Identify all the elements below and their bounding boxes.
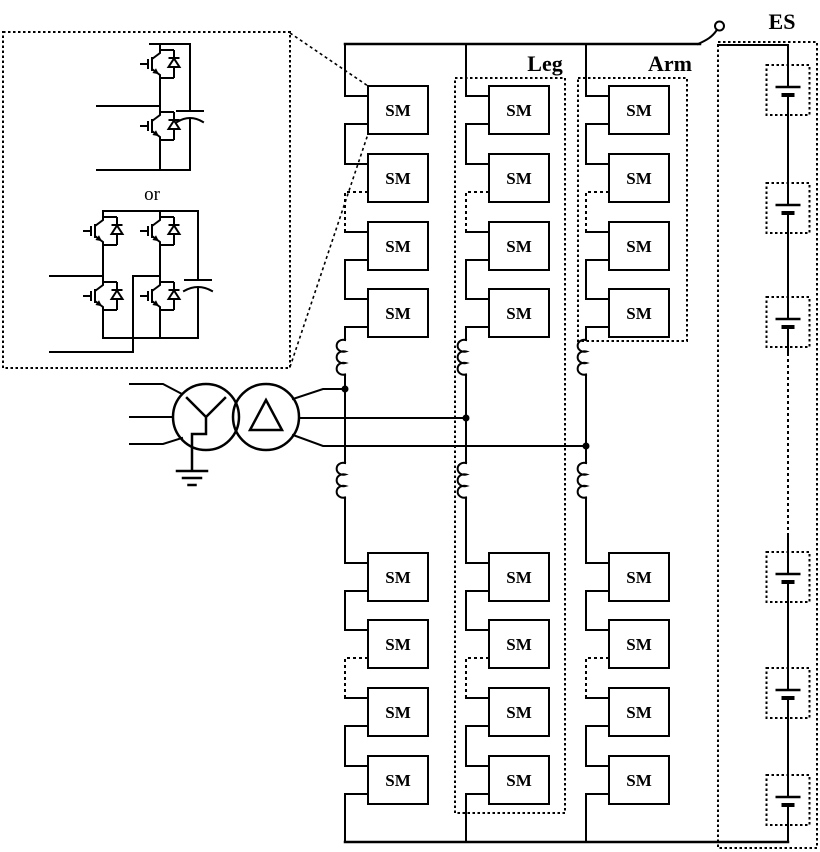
igbt-icon bbox=[83, 276, 123, 316]
sm-label: SM bbox=[626, 237, 652, 256]
sm-label: SM bbox=[385, 101, 411, 120]
wye-delta-transformer-icon bbox=[130, 384, 299, 485]
sm-block: SM bbox=[609, 756, 669, 804]
secondary-winding-circle bbox=[233, 384, 299, 450]
half-bridge-submodule-icon bbox=[97, 44, 203, 170]
sm-label: SM bbox=[626, 101, 652, 120]
sm-label: SM bbox=[506, 237, 532, 256]
battery-cell-icon bbox=[767, 65, 810, 115]
sm-block: SM bbox=[368, 553, 428, 601]
sm-block: SM bbox=[609, 688, 669, 736]
sm-block: SM bbox=[368, 756, 428, 804]
sm-block: SM bbox=[609, 620, 669, 668]
sm-label: SM bbox=[506, 101, 532, 120]
igbt-icon bbox=[140, 106, 180, 146]
capacitor-icon bbox=[184, 211, 212, 338]
sm-label: SM bbox=[626, 169, 652, 188]
sm-block: SM bbox=[489, 154, 549, 202]
sm-block: SM bbox=[609, 289, 669, 337]
sm-block: SM bbox=[368, 688, 428, 736]
igbt-icon bbox=[140, 276, 180, 316]
or-label: or bbox=[144, 184, 161, 205]
es-dotted-box bbox=[718, 42, 817, 848]
sm-label: SM bbox=[385, 237, 411, 256]
battery-cell-icon bbox=[767, 552, 810, 602]
sm-label: SM bbox=[385, 635, 411, 654]
full-bridge-submodule-icon bbox=[50, 211, 212, 352]
es-label: ES bbox=[769, 9, 796, 34]
sm-label: SM bbox=[385, 568, 411, 587]
sm-block: SM bbox=[489, 756, 549, 804]
sm-label: SM bbox=[626, 304, 652, 323]
sm-block: SM bbox=[368, 289, 428, 337]
phase-a-leg-wiring bbox=[337, 44, 368, 842]
sm-block: SM bbox=[489, 688, 549, 736]
sm-block: SM bbox=[609, 222, 669, 270]
battery-string-wire bbox=[718, 45, 788, 842]
sm-label: SM bbox=[506, 169, 532, 188]
sm-block: SM bbox=[609, 154, 669, 202]
dc-bus-tap-hook-icon bbox=[698, 22, 724, 45]
sm-label: SM bbox=[385, 703, 411, 722]
sm-label: SM bbox=[385, 771, 411, 790]
sm-label: SM bbox=[626, 635, 652, 654]
sm-label: SM bbox=[626, 568, 652, 587]
battery-cell-icon bbox=[767, 183, 810, 233]
sm-block: SM bbox=[368, 222, 428, 270]
sm-label: SM bbox=[626, 703, 652, 722]
sm-block: SM bbox=[368, 86, 428, 134]
delta-symbol bbox=[250, 400, 282, 430]
energy-storage-section bbox=[718, 42, 817, 848]
sm-label: SM bbox=[385, 169, 411, 188]
sm-block: SM bbox=[609, 553, 669, 601]
detail-pointer-lines bbox=[290, 33, 368, 367]
phase-c-leg-wiring bbox=[578, 44, 609, 842]
sm-label: SM bbox=[626, 771, 652, 790]
sm-label: SM bbox=[506, 568, 532, 587]
sm-label: SM bbox=[506, 635, 532, 654]
phase-connection-lines bbox=[293, 386, 590, 450]
arm-label: Arm bbox=[648, 51, 692, 76]
earth-ground-icon bbox=[177, 471, 207, 485]
igbt-icon bbox=[140, 211, 180, 251]
sm-block: SM bbox=[368, 620, 428, 668]
leg-label: Leg bbox=[527, 51, 562, 76]
sm-label: SM bbox=[506, 304, 532, 323]
wye-symbol bbox=[187, 398, 225, 470]
phase-b-leg-wiring bbox=[458, 44, 489, 842]
sm-block: SM bbox=[489, 553, 549, 601]
capacitor-icon bbox=[177, 44, 203, 170]
sm-label: SM bbox=[506, 771, 532, 790]
battery-cell-icon bbox=[767, 668, 810, 718]
battery-cell-icon bbox=[767, 775, 810, 825]
sm-label: SM bbox=[385, 304, 411, 323]
sm-label: SM bbox=[506, 703, 532, 722]
sm-block: SM bbox=[489, 222, 549, 270]
sm-block: SM bbox=[609, 86, 669, 134]
battery-cell-icon bbox=[767, 297, 810, 347]
sm-block: SM bbox=[489, 620, 549, 668]
igbt-icon bbox=[83, 211, 123, 251]
igbt-icon bbox=[140, 44, 180, 84]
mmc-energy-storage-circuit-diagram: or SMSMSMSMSMS bbox=[0, 0, 820, 852]
sm-block: SM bbox=[489, 289, 549, 337]
submodule-detail-inset: or bbox=[3, 32, 368, 368]
sm-block: SM bbox=[489, 86, 549, 134]
sm-block: SM bbox=[368, 154, 428, 202]
